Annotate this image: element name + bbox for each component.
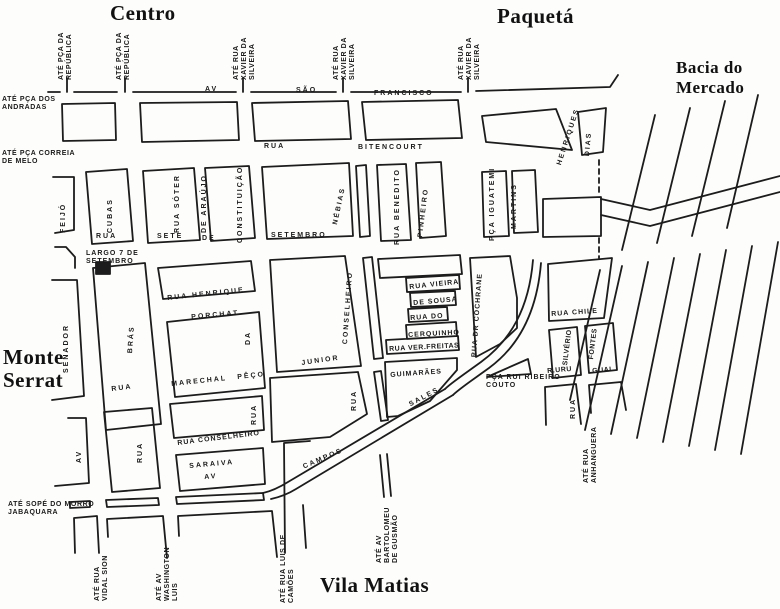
edge-label-ate-av-washington-luis: ATÉ AV WASHINGTON LUIS <box>156 529 180 601</box>
street-label-av-senador: AV <box>76 450 84 463</box>
edge-label-ate-pca-correia-melo: ATÉ PÇA CORREIA DE MELO <box>2 150 82 166</box>
nebias-median-strips <box>363 257 388 421</box>
edge-label-ate-av-bartolomeu-gusmao: ATÉ AV BARTOLOMEU DE GUSMÃO <box>376 497 400 563</box>
street-label-sao: SÃO <box>296 87 317 95</box>
edge-label-ate-rua-anhanguera: ATÉ RUA ANHANGUERA <box>583 425 599 483</box>
street-label-rua-nebias-south: RUA <box>351 390 359 411</box>
street-label-rua-d3: RUA <box>251 404 259 425</box>
piers-upper <box>622 95 758 250</box>
street-label-feijo: FEIJÓ <box>60 203 68 233</box>
edge-label-ate-pca-andradas: ATÉ PÇA DOS ANDRADAS <box>2 96 66 112</box>
street-label-setembro-rua: RUA <box>96 233 117 241</box>
street-label-pca-rui-ribeiro-couto: PÇA RUI RIBEIRO COUTO <box>486 374 562 390</box>
market-road <box>601 176 780 226</box>
street-label-pca-iguatemi: PÇA IGUATEMI <box>489 167 497 241</box>
street-label-largo-7-setembro: LARGO 7 DE SETEMBRO <box>86 250 148 266</box>
street-label-senador: SENADOR <box>63 324 71 373</box>
street-label-av: AV <box>205 86 218 94</box>
street-label-setembro: SETEMBRO <box>271 232 327 240</box>
bartolomeu-street-stub <box>380 454 391 497</box>
street-label-rua-soter: RUA SÓTER <box>174 174 182 233</box>
street-label-rua-benedito: RUA BENEDITO <box>394 168 402 245</box>
piers-lower <box>570 242 778 454</box>
edge-label-ate-pca-republica-2: ATÉ PÇA DA REPÚBLICA <box>116 16 132 80</box>
edge-label-ate-rua-xavier-1: ATÉ RUA XAVIER DA SILVEIRA <box>233 14 257 80</box>
right-blocks <box>545 258 626 425</box>
street-label-cubas: CUBAS <box>107 198 115 233</box>
street-label-francisco: FRANCISCO <box>374 90 434 98</box>
street-label-de-araujo: DE ARAÚJO <box>201 174 209 233</box>
street-label-constituicao: CONSTITUIÇÃO <box>237 166 245 243</box>
edge-label-ate-rua-xavier-2: ATÉ RUA XAVIER DA SILVEIRA <box>333 14 357 80</box>
district-title-monte-serrat: Monte Serrat <box>3 346 85 392</box>
street-map: Centro Paquetá Bacia do Mercado Monte Se… <box>0 0 780 609</box>
street-label-bitencourt-rua: RUA <box>264 143 285 151</box>
street-label-setembro-de: DE <box>202 235 216 243</box>
district-title-vila-matias: Vila Matias <box>320 574 429 597</box>
street-label-rua-d2: RUA <box>137 442 145 463</box>
edge-label-ate-sope-morro-jabaquara: ATÉ SOPÉ DO MORRO JABAQUARA <box>8 501 100 517</box>
district-title-bacia-do-mercado: Bacia do Mercado <box>676 58 780 98</box>
edge-label-ate-rua-xavier-3: ATÉ RUA XAVIER DA SILVEIRA <box>458 14 482 80</box>
edge-label-ate-pca-republica-1: ATÉ PÇA DA REPÚBLICA <box>58 16 74 80</box>
street-label-rua-right: RUA <box>570 398 578 419</box>
edge-label-ate-rua-luis-camoes: ATÉ RUA LUIS DE CAMÕES <box>280 523 296 603</box>
street-label-setembro-sete: SETE <box>157 233 183 241</box>
street-label-av-saraiva: AV <box>204 473 218 482</box>
street-label-da: DA <box>245 331 253 345</box>
edge-label-ate-rua-vidal-sion: ATÉ RUA VIDAL SION <box>94 543 110 601</box>
district-title-paqueta: Paquetá <box>497 5 574 28</box>
row-a-blocks <box>62 100 606 155</box>
street-label-martins: MARTINS <box>511 183 519 229</box>
street-label-bitencourt: BITENCOURT <box>358 144 424 152</box>
street-label-guai: GUAI <box>592 366 612 376</box>
